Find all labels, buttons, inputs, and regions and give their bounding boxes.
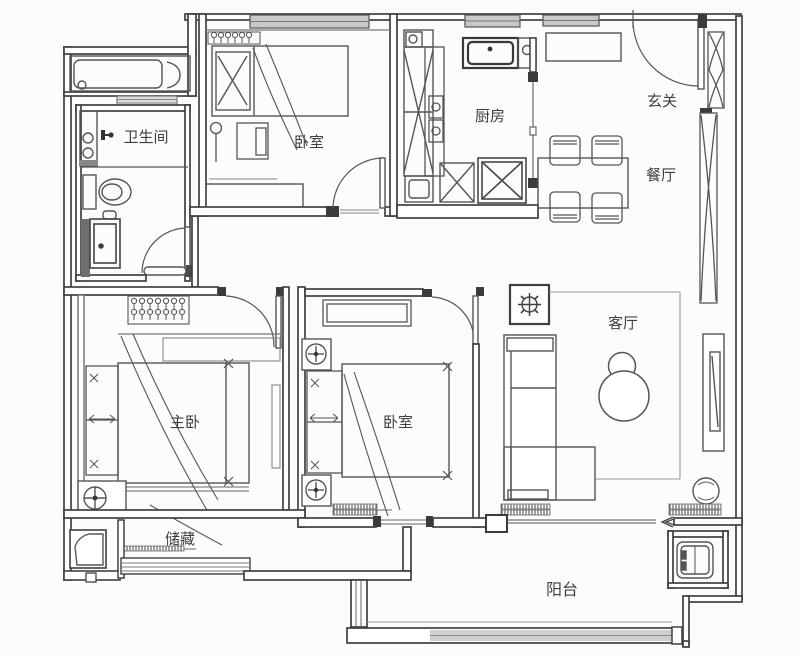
svg-text:储藏: 储藏: [165, 531, 195, 548]
svg-text:餐厅: 餐厅: [646, 167, 676, 184]
svg-text:厨房: 厨房: [475, 108, 505, 125]
svg-text:阳台: 阳台: [546, 581, 578, 599]
svg-text:卫生间: 卫生间: [123, 129, 168, 146]
svg-text:玄关: 玄关: [647, 93, 677, 110]
svg-text:卧室: 卧室: [383, 414, 413, 431]
svg-text:客厅: 客厅: [608, 315, 638, 332]
svg-text:卧室: 卧室: [294, 134, 324, 151]
svg-text:主卧: 主卧: [170, 414, 200, 431]
